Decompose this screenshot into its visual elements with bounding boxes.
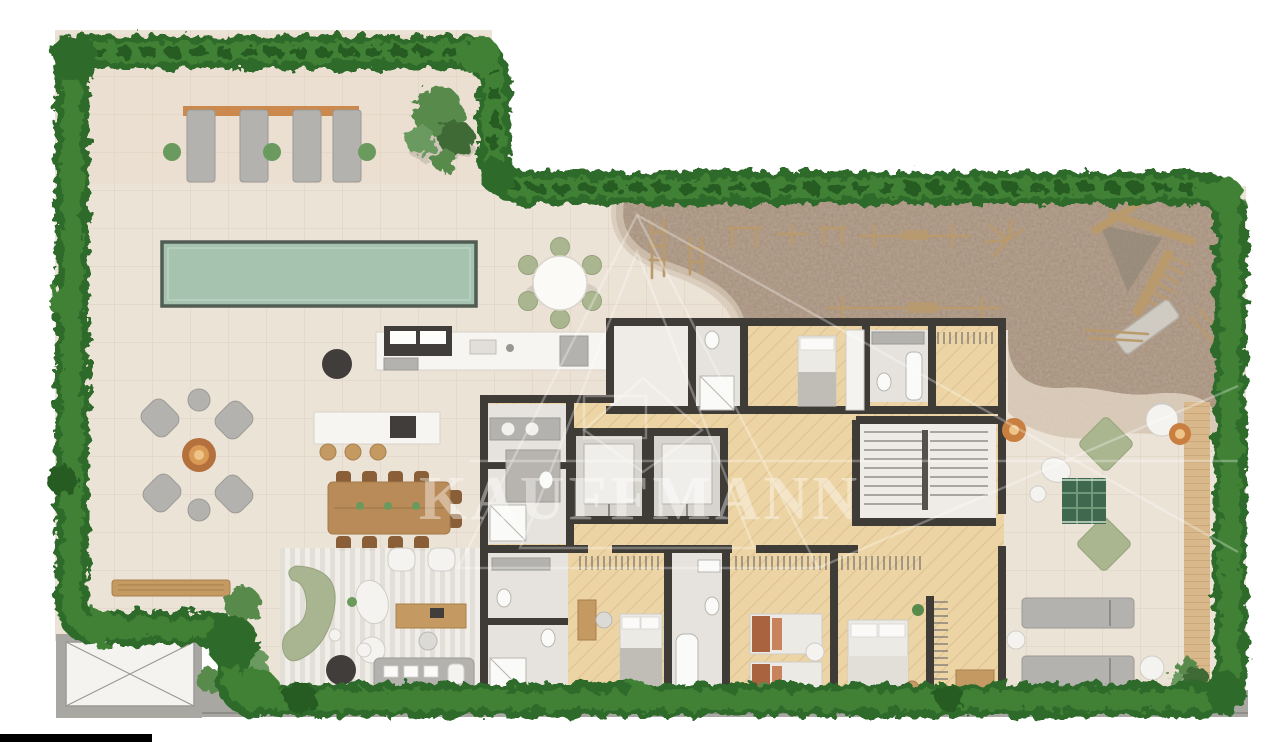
round-coffee-table bbox=[326, 655, 356, 685]
wood-deck-strip bbox=[1184, 402, 1210, 700]
pouf bbox=[1140, 656, 1164, 680]
patterned-rug bbox=[1062, 478, 1106, 524]
watermark-text: KAUFFMANN bbox=[419, 465, 861, 533]
armchair bbox=[388, 548, 415, 571]
shrub bbox=[358, 143, 376, 161]
void-slab-x bbox=[66, 642, 194, 706]
floor-plan-rendering: KAUFFMANN bbox=[0, 0, 1280, 742]
bedroom-upper bbox=[798, 336, 836, 406]
lap-pool bbox=[162, 242, 476, 306]
shrub bbox=[263, 143, 281, 161]
black-bar bbox=[0, 734, 152, 742]
garden-bench bbox=[112, 580, 230, 596]
fire-pit bbox=[182, 438, 216, 472]
floorplan-page: KAUFFMANN bbox=[0, 0, 1280, 742]
armchair bbox=[428, 548, 455, 571]
shrub bbox=[163, 143, 181, 161]
planter-bowl bbox=[322, 349, 352, 379]
